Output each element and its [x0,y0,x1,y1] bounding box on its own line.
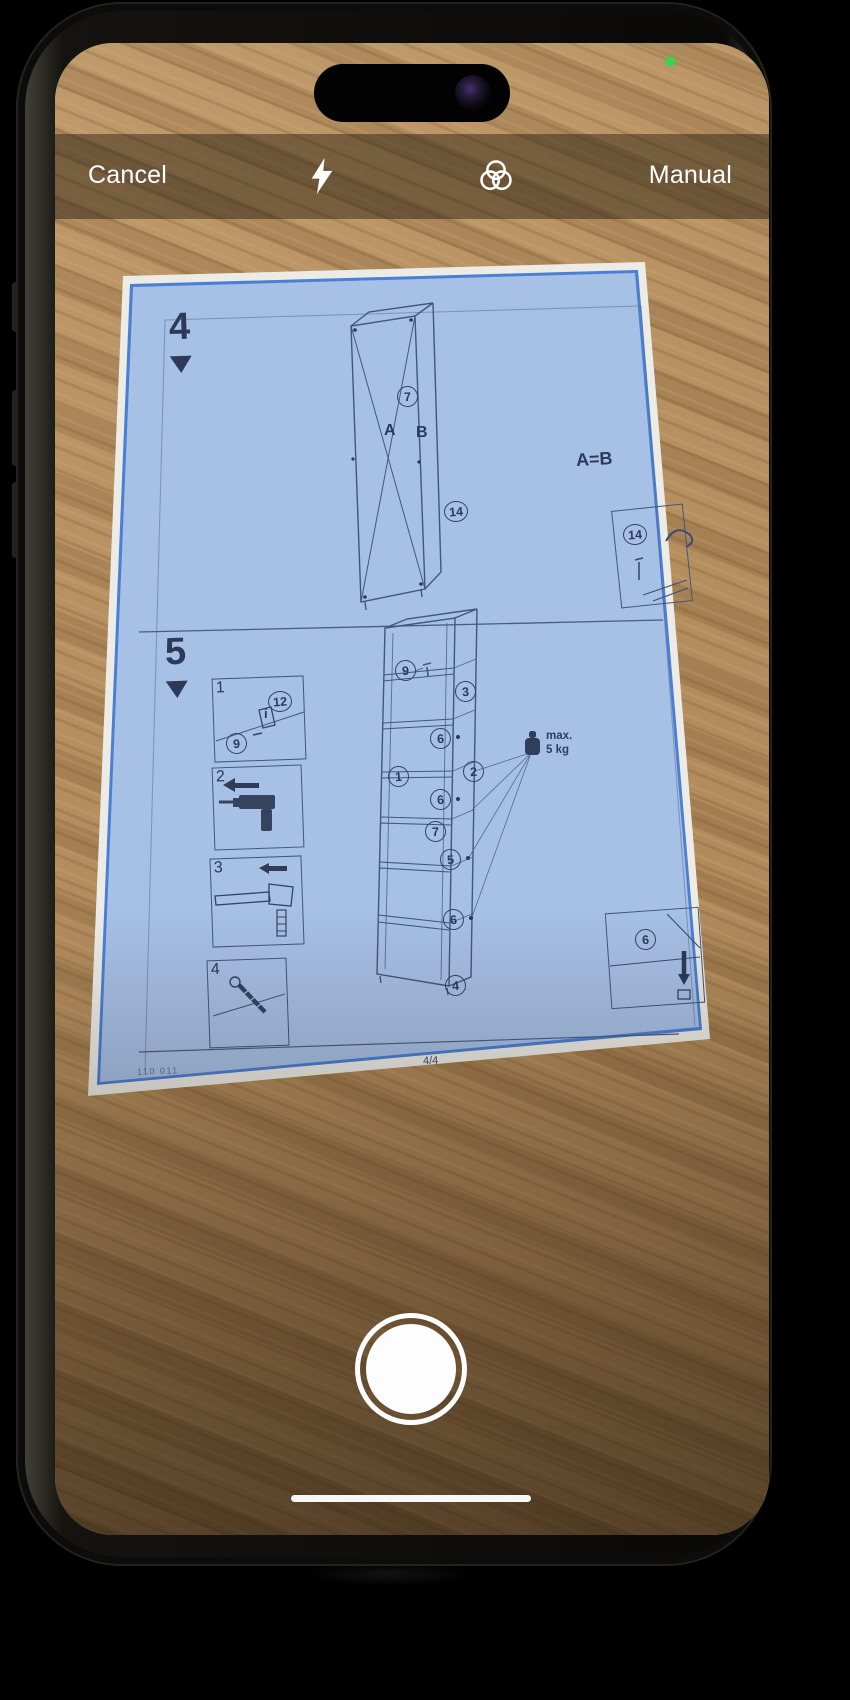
camera-viewport: 4 7 A B 14 A=B 14 5 1 12 9 i 2 3 [55,43,769,1535]
manual-mode-button[interactable]: Manual [649,161,732,190]
flash-icon[interactable] [309,158,335,194]
cancel-button[interactable]: Cancel [88,161,167,190]
camera-active-indicator [666,57,675,66]
shutter-button[interactable] [366,1324,456,1414]
dynamic-island [314,64,510,122]
filters-icon[interactable] [476,156,516,196]
front-camera-icon [455,75,491,111]
camera-top-bar: Cancel Manual [55,134,769,219]
phone-frame: 4 7 A B 14 A=B 14 5 1 12 9 i 2 3 [18,4,770,1564]
home-indicator[interactable] [291,1495,531,1502]
shadow-vignette [55,43,769,1535]
